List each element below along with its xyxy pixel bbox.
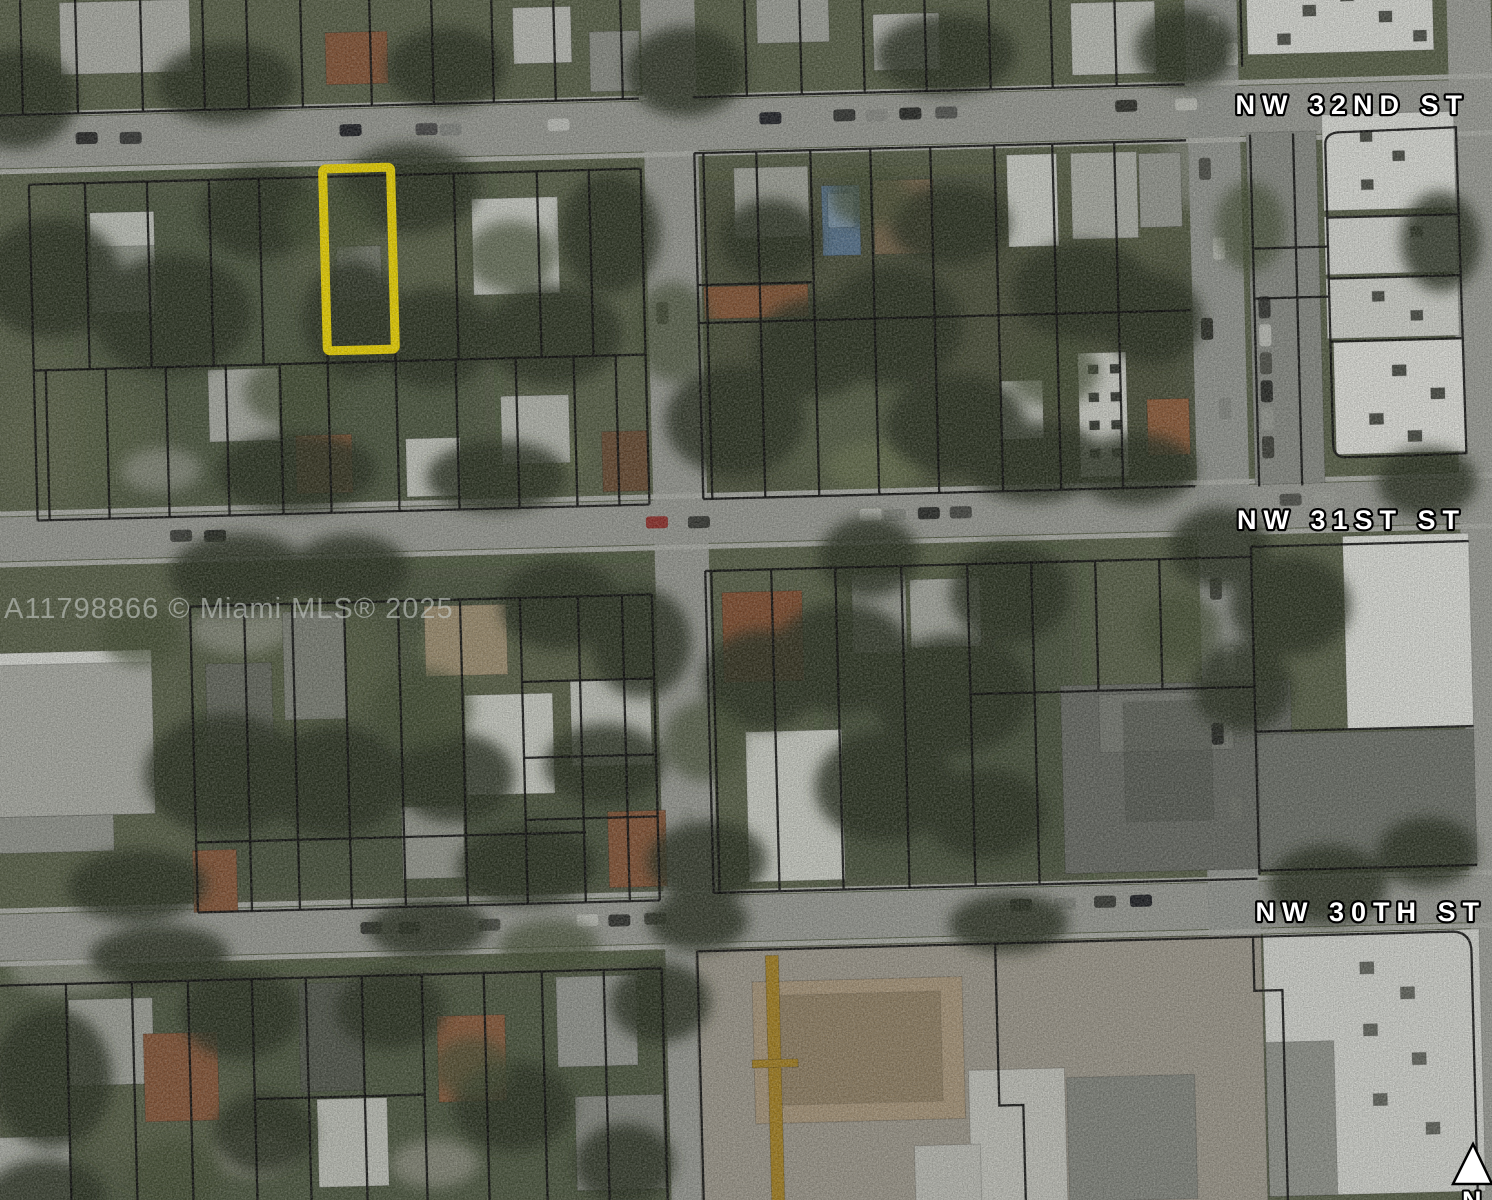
north-label: N xyxy=(1462,1186,1482,1200)
aerial-parcel-map: NW 32ND ST NW 31ST ST NW 30TH ST A117988… xyxy=(0,0,1492,1200)
street-label-nw-31st-st: NW 31ST ST xyxy=(1237,505,1466,535)
street-label-nw-32nd-st: NW 32ND ST xyxy=(1235,90,1469,120)
satellite-map-canvas: NW 32ND ST NW 31ST ST NW 30TH ST A117988… xyxy=(0,0,1492,1200)
mls-watermark: A11798866 © Miami MLS® 2025 xyxy=(4,593,454,625)
street-label-nw-30th-st: NW 30TH ST xyxy=(1255,897,1486,927)
